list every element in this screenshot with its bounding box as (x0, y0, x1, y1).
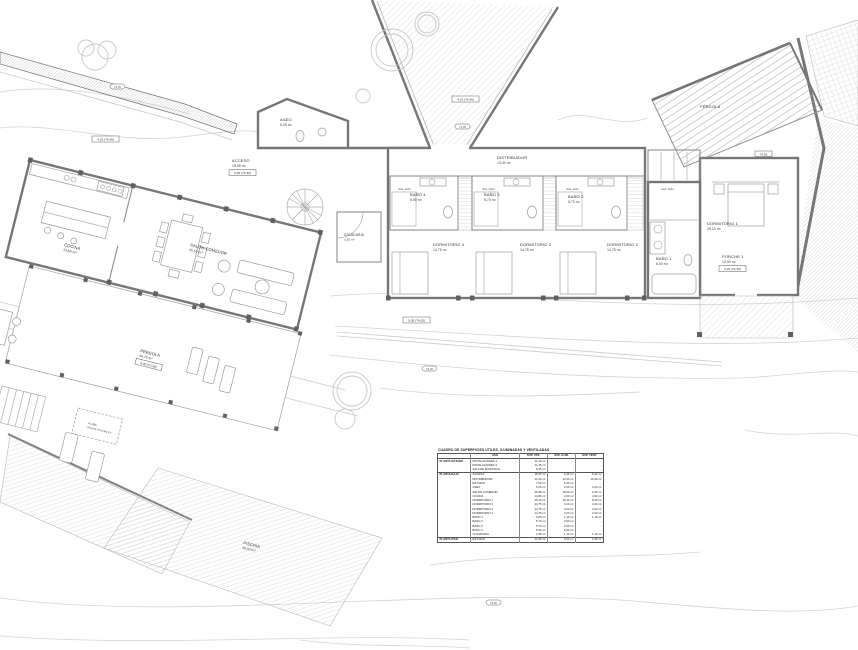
bed-dormitorio-2 (560, 252, 596, 294)
label-aljibe: ALJIBE AGUAS PLUVIALES (87, 421, 113, 435)
room-area: 6,00 m² (656, 262, 669, 266)
room-area: 13,40 m² (497, 161, 512, 165)
level-value: 74,30 (459, 125, 466, 129)
surface-table-section: PLANTA PISOESTUDIO14,40 m²5,60 m²2,40 m² (438, 538, 604, 543)
table-row: PLANTA PISOESTUDIO14,40 m²5,60 m²2,40 m² (438, 538, 604, 543)
master-suite (648, 150, 798, 338)
spot-level-1: 74,35 (110, 84, 125, 89)
entry-opening (431, 145, 469, 152)
level-value: 73,50 (490, 601, 497, 605)
floor-plan-page: COCINA 13,80 m² SALÓN-COMEDOR 45,50 m² A… (0, 0, 858, 650)
surface-table-title: CUADRO DE SUPERFICIES ÚTILES, ILUMINADAS… (438, 448, 603, 452)
spiral-staircase (287, 189, 323, 225)
level-value: 74,35 (114, 85, 121, 89)
room-area: 5,70 m² (568, 200, 581, 204)
south-terraces (0, 386, 382, 626)
room-name: PORCHE 1 (722, 254, 744, 259)
room-name: BAÑO 4 (410, 192, 426, 197)
stairs-southwest (0, 386, 46, 432)
room-name: DORMITORIO 1 (707, 221, 739, 226)
lightwell-stair-2 (543, 178, 556, 230)
annotation-text: AGUAS PLUVIALES (87, 425, 112, 435)
slope-hatch-east (792, 118, 858, 352)
pergola-top-right (652, 43, 822, 167)
room-area: 5,70 m² (484, 198, 497, 202)
room-area: 18,05 m² (232, 164, 247, 168)
label-aseo: ASEO 5,25 m² (280, 117, 293, 127)
room-area: 14,75 m² (607, 248, 622, 252)
level-value: 0,20 (74,30) (234, 171, 251, 175)
aseo-room (258, 99, 348, 148)
room-name: BAÑO 1 (656, 256, 672, 261)
surface-table-section: PLANTA SÓTANOINSTALACIONES 111,30 m²--IN… (438, 459, 604, 473)
lightwell-stair-3 (627, 178, 643, 230)
level-marker-7: 74,00 (755, 151, 772, 157)
room-area: 5,50 m² (410, 198, 423, 202)
room-name: DISTRIBUIDOR (497, 155, 527, 160)
rainwater-tank (72, 408, 123, 444)
section-name: PLANTA PISO (438, 538, 471, 543)
level-marker-6: 5,05 (74,05) (403, 317, 430, 323)
living-wing (0, 155, 328, 431)
cell-value: 14,40 m² (520, 538, 548, 543)
cell-value: 5,60 m² (548, 538, 576, 543)
lightwell-stair-1 (458, 178, 472, 230)
room-name: ASEO (280, 117, 292, 122)
room-name: BAÑO 2 (568, 194, 584, 199)
label-vest-bano-4: Vest. baño (398, 187, 411, 191)
spot-level-3: 74,20 (422, 366, 437, 371)
spot-level-4: 73,50 (486, 600, 501, 605)
room-area: 5,25 m² (280, 123, 293, 127)
level-value: 4,15 (74,40) (97, 138, 114, 142)
bed-dormitorio-3 (476, 252, 512, 294)
label-coladuria: COLADURIA 3,35 m² (344, 233, 365, 241)
surface-table-grid: USO SUP. ÚTIL SUP. ILUM. SUP. VENT. PLAN… (437, 453, 604, 543)
room-name: DORMITORIO 3 (520, 242, 552, 247)
site-plan-drawing: COCINA 13,80 m² SALÓN-COMEDOR 45,50 m² A… (0, 0, 858, 650)
level-marker-2: 4,15 (74,40) (452, 96, 479, 102)
room-area: 14,75 m² (433, 248, 448, 252)
room-name: DORMITORIO 4 (433, 242, 465, 247)
room-area: 14,75 m² (520, 248, 535, 252)
surface-table-section: PLANTA BAJAACCESO18,05 m²5,40 m²5,40 m²D… (438, 473, 604, 538)
level-value: 74,00 (760, 152, 768, 156)
room-area: 25,10 m² (707, 227, 722, 231)
cell-value: 2,40 m² (576, 538, 604, 543)
spot-level-2: 74,30 (455, 124, 470, 129)
level-marker-1: 4,15 (74,40) (92, 136, 119, 142)
section-name: PLANTA BAJA (438, 473, 471, 538)
room-name: COLADURIA (344, 233, 365, 237)
room-name: DORMITORIO 2 (607, 242, 639, 247)
cell-uso: ESTUDIO (471, 538, 520, 543)
label-vest-bano-2: Vest. baño (566, 187, 579, 191)
room-name: BAÑO 3 (484, 192, 500, 197)
room-area: 13,90 m² (722, 260, 737, 264)
room-area: 3,35 m² (344, 237, 355, 241)
level-value: 5,05 (74,05) (408, 319, 425, 323)
surface-areas-table: CUADRO DE SUPERFICIES ÚTILES, ILUMINADAS… (437, 448, 603, 543)
label-vest-bano-3: Vest. baño (482, 187, 495, 191)
section-name: PLANTA SÓTANO (438, 459, 471, 473)
label-pergola-top: PÉRGOLA (700, 104, 721, 109)
bedroom-wing (386, 145, 647, 301)
label-vest-bano-1: Vest. baño (661, 187, 674, 191)
label-acceso: ACCESO 18,05 m² 0,20 (74,30) (229, 158, 256, 176)
retaining-wall-northwest (0, 52, 237, 134)
porch (700, 296, 793, 338)
room-name: ACCESO (232, 158, 250, 163)
level-value: 0,20 (74,30) (724, 267, 741, 271)
level-value: 74,20 (426, 367, 433, 371)
bed-dormitorio-4 (392, 252, 428, 294)
room-name: PÉRGOLA (700, 104, 721, 109)
level-value: 4,15 (74,40) (457, 98, 474, 102)
